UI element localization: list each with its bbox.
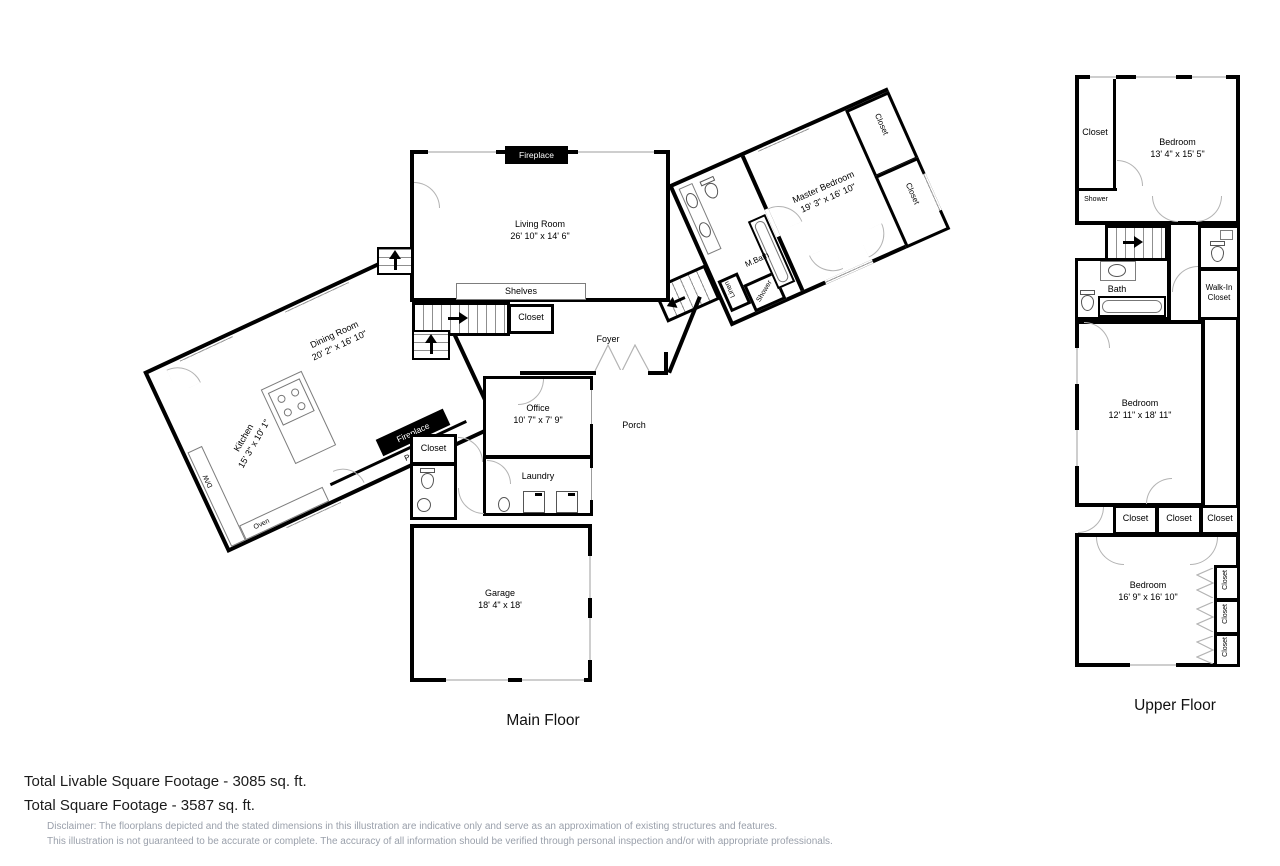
arrow-stem bbox=[394, 259, 397, 270]
upper-shower-wall bbox=[1075, 188, 1117, 191]
sink-icon bbox=[1108, 264, 1126, 277]
stairs-arrow-right bbox=[1123, 236, 1143, 248]
door-arc bbox=[458, 437, 483, 462]
upper-right-outer-wall bbox=[1236, 318, 1240, 508]
garage-door bbox=[446, 678, 508, 682]
foyer-corner-stub bbox=[664, 352, 668, 375]
burner-icon bbox=[289, 387, 300, 398]
bath-label: Bath bbox=[1087, 284, 1147, 296]
entry-double-door bbox=[594, 344, 650, 372]
bedroom1-label: Bedroom 13' 4" x 15' 5" bbox=[1120, 137, 1235, 160]
bifold-door bbox=[1196, 636, 1214, 664]
arrow-stem bbox=[430, 343, 433, 354]
tub-icon bbox=[1098, 296, 1166, 317]
window bbox=[428, 150, 496, 154]
window bbox=[757, 127, 810, 153]
arrow-stem bbox=[674, 297, 685, 304]
stairs-arrow-right bbox=[448, 312, 468, 324]
window bbox=[1075, 430, 1079, 466]
toilet-bowl bbox=[1211, 246, 1224, 262]
porch-label: Porch bbox=[606, 420, 662, 432]
toilet-icon bbox=[1210, 241, 1225, 262]
door-arc bbox=[1172, 266, 1198, 292]
bifold-door bbox=[1196, 602, 1214, 632]
bedroom2-label: Bedroom 12' 11" x 18' 11" bbox=[1082, 398, 1198, 421]
arrow-head bbox=[1134, 236, 1143, 248]
window bbox=[1192, 75, 1226, 79]
toilet-bowl bbox=[1081, 295, 1094, 311]
closet-row-3-label: Closet bbox=[1201, 513, 1239, 525]
bedroom3-label: Bedroom 16' 9" x 16' 10" bbox=[1083, 580, 1213, 603]
stairs-arrow-up bbox=[389, 250, 401, 270]
dryer-controls bbox=[568, 493, 575, 496]
window bbox=[578, 150, 654, 154]
upper-floor-title: Upper Floor bbox=[1085, 697, 1265, 715]
disclaimer-line-2: This illustration is not guaranteed to b… bbox=[47, 836, 833, 847]
upper-closet-label: Closet bbox=[1077, 127, 1113, 139]
window bbox=[589, 390, 594, 424]
burner-icon bbox=[283, 407, 294, 418]
window bbox=[588, 618, 592, 660]
toilet-icon bbox=[420, 468, 435, 489]
window bbox=[588, 556, 592, 598]
entry-closet-label: Closet bbox=[412, 443, 455, 455]
laundry-sink-icon bbox=[498, 497, 510, 512]
sink-icon bbox=[417, 498, 431, 512]
master-bedroom-label: Master Bedroom 19' 3" x 16' 10" bbox=[753, 152, 900, 234]
garage-door bbox=[522, 678, 584, 682]
door-arc bbox=[166, 359, 201, 394]
washer-icon bbox=[523, 491, 545, 513]
dryer-icon bbox=[556, 491, 578, 513]
washer-controls bbox=[535, 493, 542, 496]
laundry-label: Laundry bbox=[503, 471, 573, 483]
living-room-label: Living Room 26' 10" x 14' 6" bbox=[420, 219, 660, 242]
window bbox=[1136, 75, 1176, 79]
closet-row-2-label: Closet bbox=[1158, 513, 1200, 525]
stairs-arrow-up bbox=[425, 334, 437, 354]
toilet-icon bbox=[699, 176, 721, 201]
arrow-stem bbox=[448, 317, 459, 320]
hall-closet-label: Closet bbox=[510, 312, 552, 324]
fireplace-living: Fireplace bbox=[505, 146, 568, 164]
window bbox=[1130, 663, 1176, 667]
arrow-head bbox=[389, 250, 401, 259]
garage-label: Garage 18' 4" x 18' bbox=[430, 588, 570, 611]
door-arc bbox=[333, 461, 365, 493]
window bbox=[1075, 348, 1079, 384]
dining-room-label: Dining Room 20' 2" x 16' 10" bbox=[255, 294, 419, 387]
bedroom3-closet-3-label: Closet bbox=[1221, 637, 1230, 657]
window bbox=[284, 281, 349, 314]
disclaimer-line-1: Disclaimer: The floorplans depicted and … bbox=[47, 821, 777, 832]
bedroom3-closet-1-label: Closet bbox=[1221, 570, 1230, 590]
walk-in-closet-label: Walk-In Closet bbox=[1200, 283, 1238, 304]
office-label: Office 10' 7" x 7' 9" bbox=[488, 403, 588, 426]
wc-sink bbox=[1220, 230, 1233, 240]
door-arc bbox=[858, 223, 892, 257]
upper-shower-label: Shower bbox=[1078, 195, 1114, 204]
kitchen-label: Kitchen 15' 3" x 10' 1" bbox=[212, 388, 287, 495]
tub-basin bbox=[1102, 300, 1162, 313]
window bbox=[179, 335, 233, 363]
entry-door-gap bbox=[596, 370, 648, 376]
shelves-label: Shelves bbox=[486, 286, 556, 298]
main-floor-title: Main Floor bbox=[453, 712, 633, 730]
toilet-bowl bbox=[421, 473, 434, 489]
arrow-head bbox=[459, 312, 468, 324]
total-livable-sqft: Total Livable Square Footage - 3085 sq. … bbox=[24, 773, 307, 790]
burner-icon bbox=[296, 400, 307, 411]
total-sqft: Total Square Footage - 3587 sq. ft. bbox=[24, 797, 255, 814]
bedroom3-closet-2-label: Closet bbox=[1221, 604, 1230, 624]
window bbox=[1090, 75, 1116, 79]
floorplan-canvas: Dining Room 20' 2" x 16' 10" Kitchen 15'… bbox=[0, 0, 1280, 866]
foyer-label: Foyer bbox=[575, 334, 641, 346]
door-arc bbox=[458, 488, 484, 514]
upper-closet-wall bbox=[1113, 75, 1116, 189]
arrow-stem bbox=[1123, 241, 1134, 244]
door-arc bbox=[1078, 507, 1104, 533]
window bbox=[589, 468, 594, 500]
arrow-head bbox=[425, 334, 437, 343]
closet-row-1-label: Closet bbox=[1115, 513, 1156, 525]
hall-wall bbox=[1167, 225, 1171, 320]
